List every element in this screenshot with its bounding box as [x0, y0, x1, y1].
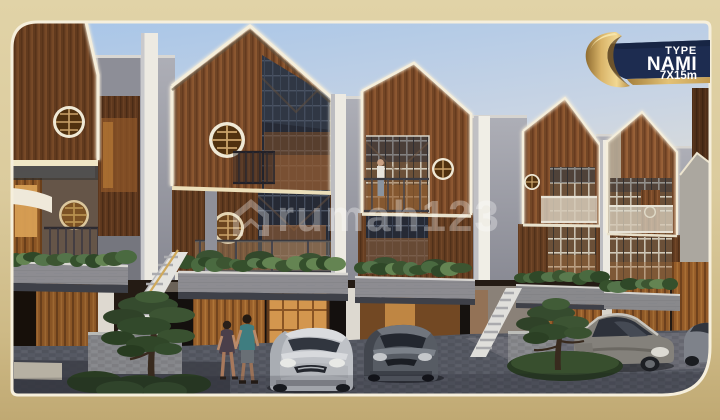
svg-text:7X15m: 7X15m: [660, 70, 697, 82]
svg-text:rumah123: rumah123: [277, 192, 501, 241]
